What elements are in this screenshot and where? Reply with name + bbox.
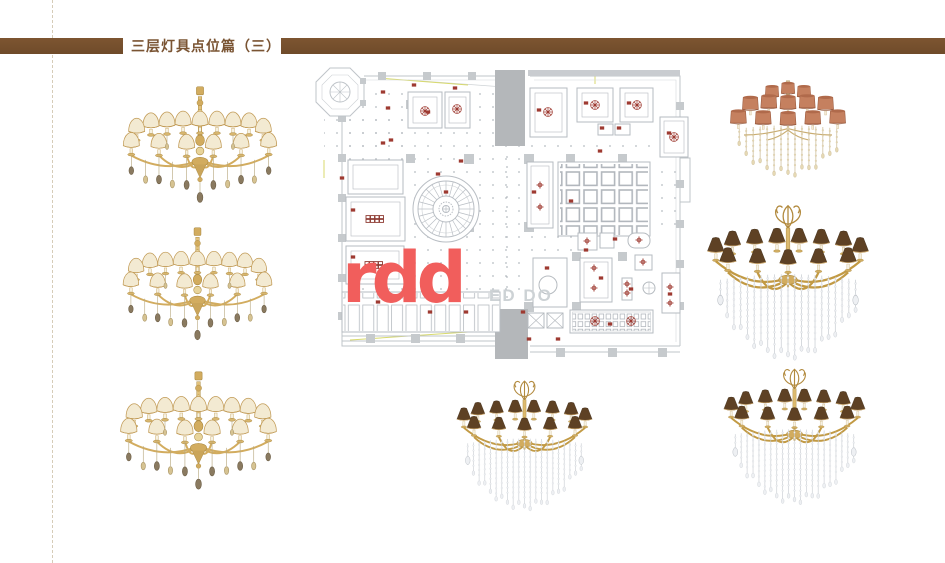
chandelier-left-top bbox=[110, 85, 290, 217]
watermark-logo: rdd bbox=[342, 246, 462, 310]
chandelier-right-bottom bbox=[702, 366, 887, 508]
watermark-partial-text: ED DO bbox=[489, 286, 553, 306]
margin-guide-line bbox=[52, 0, 53, 563]
lattice-ceiling bbox=[570, 310, 653, 333]
header-bar-right bbox=[281, 38, 945, 54]
chandelier-left-middle bbox=[105, 226, 290, 354]
header-bar-left bbox=[0, 38, 123, 54]
page-title: 三层灯具点位篇（三） bbox=[131, 36, 281, 56]
north-rooms bbox=[408, 92, 470, 128]
coffer-grid bbox=[558, 162, 650, 236]
chandelier-left-bottom bbox=[106, 370, 291, 504]
chandelier-right-top bbox=[712, 72, 864, 198]
chandelier-right-middle bbox=[698, 202, 878, 364]
dome bbox=[413, 176, 479, 242]
album-page: 三层灯具点位篇（三） bbox=[0, 0, 945, 563]
chandelier-bottom-center bbox=[437, 378, 612, 514]
elevators bbox=[528, 313, 563, 328]
